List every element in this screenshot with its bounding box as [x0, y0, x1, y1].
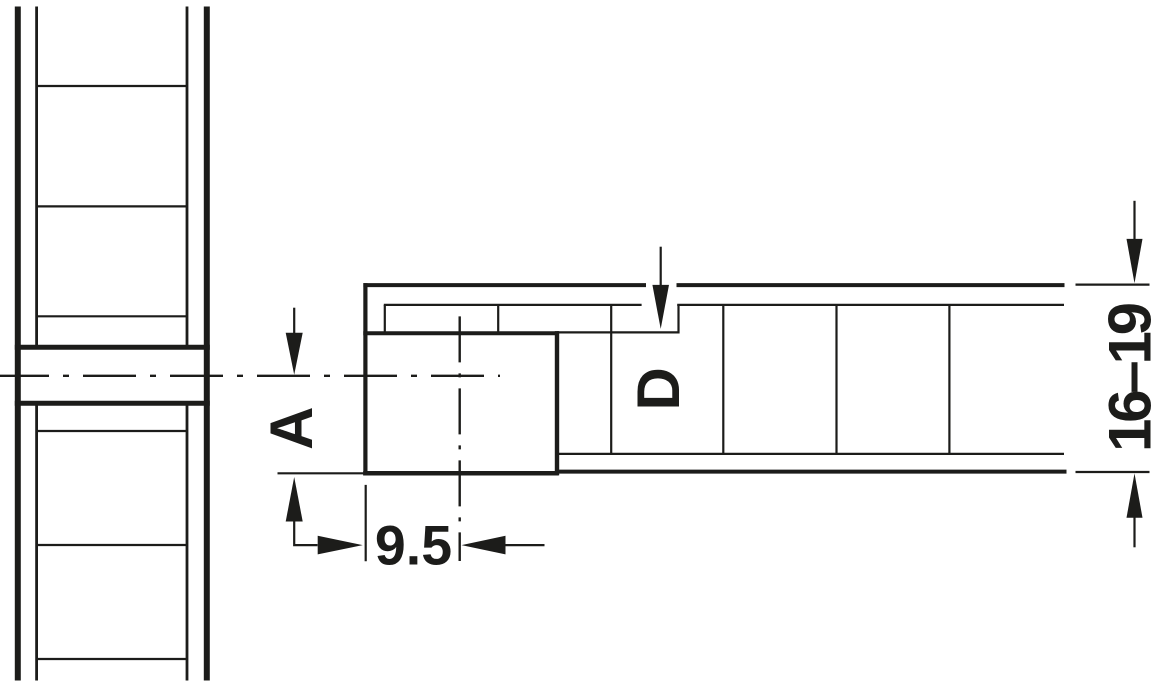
- svg-text:16–19: 16–19: [1097, 303, 1158, 452]
- svg-text:A: A: [258, 407, 325, 450]
- svg-text:D: D: [625, 367, 692, 410]
- svg-text:9.5: 9.5: [375, 515, 452, 577]
